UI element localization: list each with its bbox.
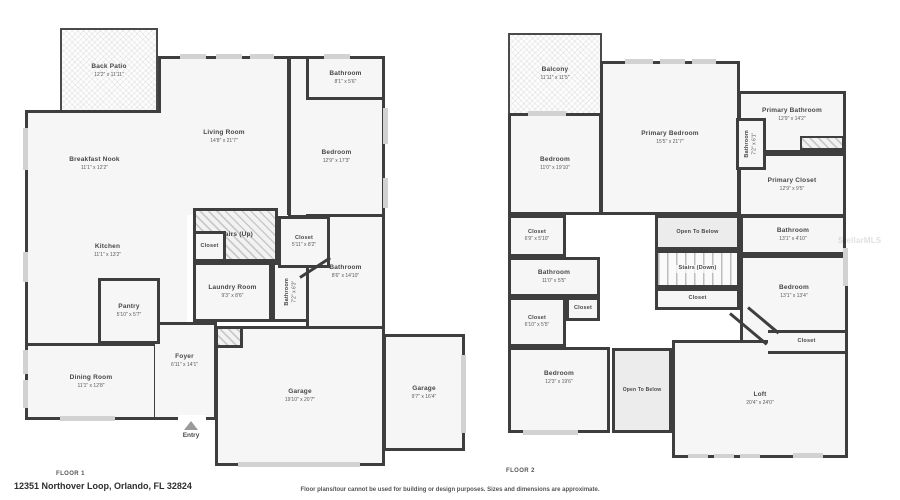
- open-to-below-lower: Open To Below: [612, 348, 672, 433]
- room-primary-bedroom: Primary Bedroom 15'5" x 21'7": [600, 61, 740, 215]
- room-bedroom-f2-left: Bedroom 12'3" x 19'6": [508, 347, 610, 433]
- room-name: Balcony: [540, 66, 569, 75]
- room-closet-f2-a: Closet 6'9" x 5'10": [508, 215, 566, 257]
- room-dims: 15'5" x 21'7": [641, 139, 699, 146]
- window: [383, 178, 388, 208]
- mls-watermark: StellarMLS: [838, 236, 881, 245]
- room-bedroom-f2-topleft: Bedroom 11'0" x 19'10": [508, 113, 602, 215]
- room-name: Primary Bedroom: [641, 130, 699, 139]
- room-name: Bedroom: [544, 370, 574, 379]
- room-name: Open To Below: [623, 387, 662, 394]
- room-dims: 6'10" x 5'5": [525, 322, 550, 329]
- window: [180, 54, 206, 59]
- room-name: Loft: [746, 391, 773, 400]
- open-to-below-upper: Open To Below: [655, 215, 740, 250]
- room-name: Closet: [200, 243, 218, 250]
- room-closet-f2-right: Closet: [768, 330, 848, 354]
- room-name: Primary Bathroom: [762, 107, 822, 116]
- room-name: Closet: [525, 315, 550, 322]
- room-dims: 7'2" x 6'3": [291, 278, 298, 306]
- window: [216, 54, 242, 59]
- floor2-plan: Balcony 11'11" x 11'5" Primary Bedroom 1…: [0, 0, 900, 500]
- room-name: Pantry: [117, 303, 142, 312]
- window: [528, 111, 566, 116]
- room-dims: 7'2" x 6'1": [751, 130, 758, 158]
- window: [714, 454, 734, 458]
- room-dims: 8'1" x 5'6": [329, 79, 361, 86]
- room-name: Bathroom: [329, 70, 361, 79]
- window: [324, 54, 350, 59]
- window: [23, 252, 28, 282]
- window: [688, 454, 708, 458]
- garage-door: [461, 355, 466, 433]
- room-bathroom-f2-right: Bathroom 13'1" x 4'10": [740, 215, 846, 255]
- room-bathroom-f1-small: Bathroom 7'2" x 6'3": [272, 262, 309, 322]
- room-name: Closet: [797, 338, 815, 345]
- room-balcony: Balcony 11'11" x 11'5": [508, 33, 602, 115]
- garage-door: [238, 462, 360, 467]
- window: [692, 59, 716, 64]
- room-bathroom-f1-top: Bathroom 8'1" x 5'6": [306, 56, 385, 100]
- room-closet-f2-mid: Closet: [566, 297, 600, 321]
- room-name: Bathroom: [284, 278, 291, 306]
- room-dims: 13'1" x 4'10": [777, 236, 809, 243]
- room-dims: 5'11" x 8'2": [292, 242, 316, 249]
- room-bathroom-f2-small: Bathroom 7'2" x 6'1": [736, 118, 766, 170]
- room-name: Bathroom: [538, 269, 570, 278]
- window: [660, 59, 685, 64]
- window: [383, 108, 388, 144]
- window: [23, 128, 28, 170]
- room-closet-under-stairs-f1: Closet: [193, 231, 226, 262]
- entry-arrow-icon: [184, 421, 198, 430]
- room-stairs-down: Stairs (Down): [655, 250, 740, 288]
- room-name: Closet: [688, 295, 706, 302]
- room-name: Bedroom: [779, 284, 809, 293]
- room-loft: Loft 20'4" x 24'0": [672, 340, 848, 458]
- room-name: Closet: [574, 305, 592, 312]
- room-dims: 11'0" x 5'5": [538, 278, 570, 285]
- room-name: Closet: [292, 235, 316, 242]
- room-name: Bathroom: [777, 227, 809, 236]
- window: [793, 453, 823, 458]
- room-name: Bedroom: [540, 156, 570, 165]
- floorplan-page: { "page": { "address": "12351 Northover …: [0, 0, 900, 500]
- vanity-hatch: [800, 136, 844, 150]
- room-bathroom-f2-left: Bathroom 11'0" x 5'5": [508, 257, 600, 297]
- room-dims: 13'1" x 13'4": [779, 293, 809, 300]
- room-dims: 12'9" x 9'5": [768, 186, 817, 193]
- room-name: Primary Closet: [768, 177, 817, 186]
- room-name: Bathroom: [744, 130, 751, 158]
- room-name: Closet: [525, 229, 550, 236]
- storage-hatch-f1: [215, 326, 243, 348]
- window: [23, 380, 28, 408]
- window: [843, 248, 848, 286]
- room-name: Open To Below: [676, 229, 718, 236]
- room-dims: 12'9" x 14'2": [762, 116, 822, 123]
- room-name: Stairs (Down): [676, 265, 718, 272]
- room-closet-under-stairs-f2: Closet: [655, 288, 740, 310]
- window: [625, 59, 653, 64]
- window: [523, 430, 578, 435]
- room-dims: 20'4" x 24'0": [746, 400, 773, 407]
- room-dims: 6'9" x 5'10": [525, 236, 550, 243]
- window: [23, 350, 28, 374]
- room-pantry: Pantry 5'10" x 5'7": [98, 278, 160, 344]
- window: [60, 416, 115, 421]
- window: [250, 54, 274, 59]
- room-dims: 11'0" x 19'10": [540, 165, 570, 172]
- window: [740, 454, 760, 458]
- disclaimer-text: Floor plans/tour cannot be used for buil…: [0, 487, 900, 493]
- room-dims: 12'3" x 19'6": [544, 379, 574, 386]
- floor2-label: FLOOR 2: [506, 468, 535, 474]
- room-dims: 5'10" x 5'7": [117, 312, 142, 319]
- room-dims: 11'11" x 11'5": [540, 75, 569, 82]
- room-closet-f2-b: Closet 6'10" x 5'5": [508, 297, 566, 347]
